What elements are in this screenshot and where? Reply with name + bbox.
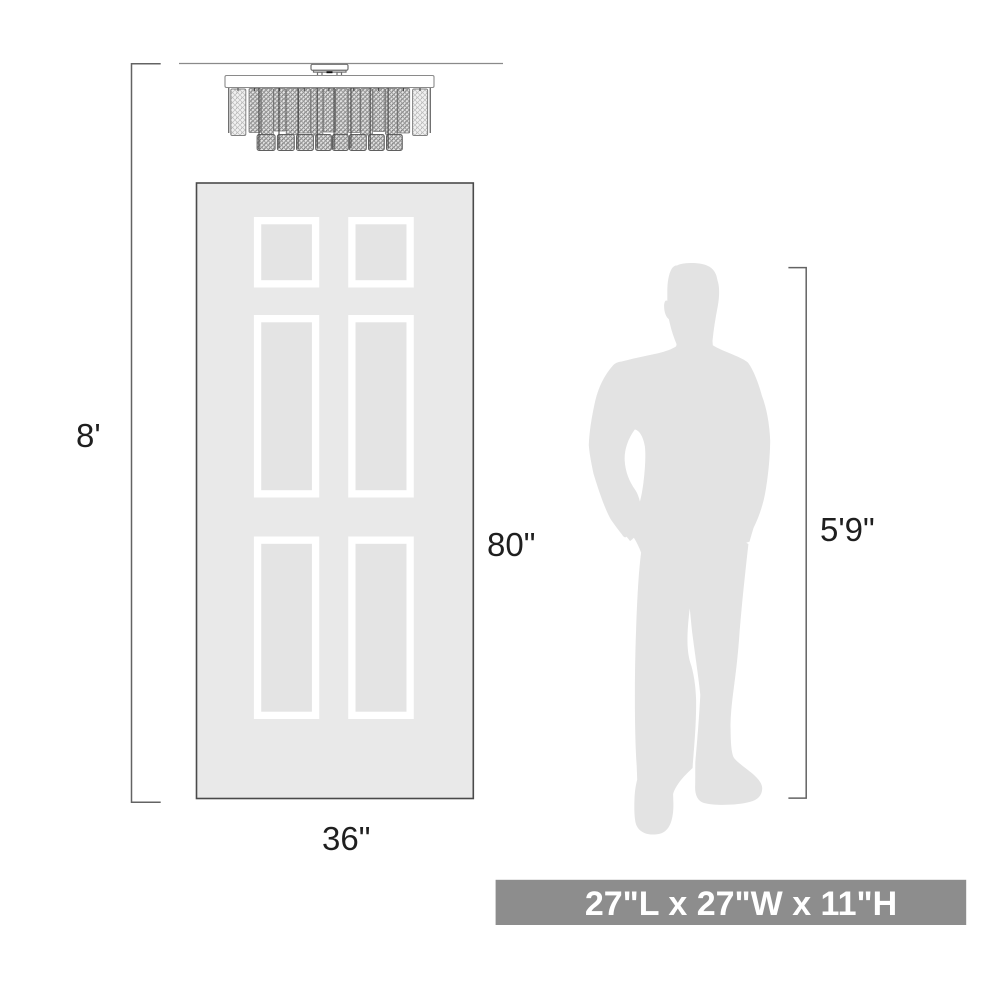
svg-text:8': 8': [76, 417, 101, 454]
svg-text:5'9": 5'9": [820, 511, 875, 548]
svg-text:80": 80": [487, 526, 535, 563]
svg-text:36": 36": [322, 820, 370, 857]
svg-text:27"L x 27"W x 11"H: 27"L x 27"W x 11"H: [585, 885, 897, 923]
